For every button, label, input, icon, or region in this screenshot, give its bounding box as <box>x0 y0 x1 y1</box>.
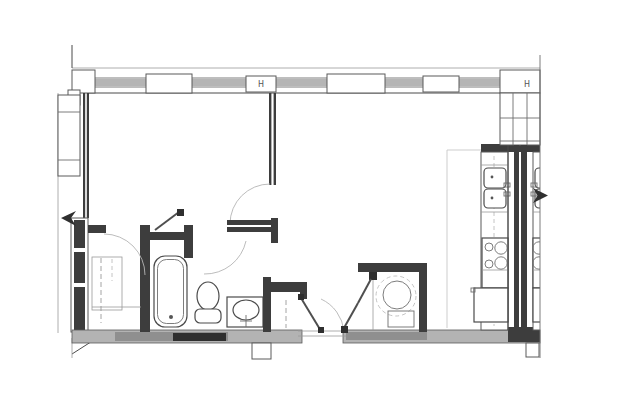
bifold-door-leaf <box>358 279 371 303</box>
bedroom-closet <box>88 225 145 323</box>
bedroom-door-swing <box>230 184 270 224</box>
bathroom-door-swing <box>204 241 246 274</box>
bathtub-drain-icon <box>169 315 173 319</box>
laundry-closet <box>341 263 427 333</box>
wall-line <box>83 93 85 218</box>
wall-stub-bar <box>227 220 278 225</box>
mullion-panel <box>146 74 192 93</box>
mullion-panel <box>423 76 459 92</box>
closet-stub-wall <box>88 225 106 233</box>
wall-line <box>87 93 89 218</box>
niche-back-wall <box>150 232 184 240</box>
door-hinge-block <box>298 294 304 300</box>
window-corner-block <box>500 70 540 93</box>
demising-wall-poche <box>521 145 527 334</box>
demising-wall-poche <box>514 145 519 334</box>
operable-window-symbol: H <box>258 80 264 89</box>
washer-drum-icon <box>383 281 411 309</box>
door-leaf-open <box>227 227 278 232</box>
floor-plan-canvas: H H <box>0 0 618 400</box>
toilet-tank <box>195 309 221 323</box>
wall-segment <box>74 220 85 248</box>
built-in-wardrobe <box>92 257 122 310</box>
mirrored-unit <box>531 152 567 330</box>
window-wall: H H <box>68 68 540 105</box>
washer-clearance-dashed <box>376 276 416 316</box>
mirrored-sink-bowl <box>535 168 557 188</box>
laundry-north-wall <box>358 263 427 272</box>
upper-wall-shaft <box>500 93 540 145</box>
bifold-door-leaf <box>344 303 358 328</box>
wall-line <box>269 93 271 185</box>
wall-segment <box>346 332 427 340</box>
kitchen-sink-bowl <box>484 168 506 188</box>
refrigerator <box>474 288 508 322</box>
closet-door-swing <box>104 234 145 275</box>
niche-stub-wall <box>184 225 193 258</box>
sink-drain-icon <box>491 176 494 179</box>
mullion-panel <box>327 74 385 93</box>
door-hinge-block <box>318 327 324 333</box>
wall-segment <box>173 333 226 341</box>
mirrored-range <box>533 238 559 288</box>
bedroom-partition <box>227 93 278 243</box>
bathroom-west-wall <box>140 225 150 332</box>
sink-drain-icon <box>491 197 494 200</box>
entry-door-leaf <box>301 298 321 331</box>
washer-base <box>388 311 414 327</box>
entry <box>263 282 344 333</box>
wall-end-cap <box>271 218 278 243</box>
mirrored-refrigerator <box>533 288 567 322</box>
pier-below-wall <box>526 343 539 357</box>
laundry-east-wall <box>419 263 427 332</box>
door-hinge-block <box>177 209 184 216</box>
operable-window-symbol: H <box>524 80 530 89</box>
exterior-pilaster <box>58 95 80 176</box>
wall-segment <box>74 252 85 283</box>
door-hinge-block <box>341 326 348 333</box>
pier-below-wall <box>252 343 271 359</box>
medicine-cabinet-door <box>155 212 179 230</box>
kitchen-sink-bowl <box>484 189 506 208</box>
toilet-bowl <box>197 282 219 310</box>
floor-plan-drawing: H H <box>0 0 618 400</box>
wall-line <box>274 93 276 185</box>
entry-door-swing <box>321 299 344 331</box>
wall-segment <box>74 287 85 330</box>
